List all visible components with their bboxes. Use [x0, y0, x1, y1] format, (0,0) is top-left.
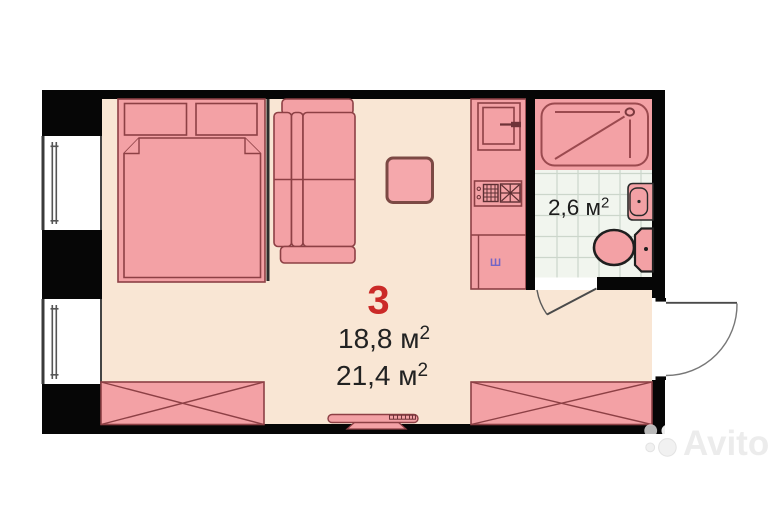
svg-text:18,8 м2: 18,8 м2 [338, 323, 430, 354]
svg-text:21,4 м2: 21,4 м2 [336, 360, 428, 391]
svg-text:Avito: Avito [683, 424, 769, 463]
svg-text:Ш: Ш [490, 257, 501, 269]
svg-text:3: 3 [367, 279, 389, 323]
svg-text:2,6 м2: 2,6 м2 [548, 195, 609, 221]
